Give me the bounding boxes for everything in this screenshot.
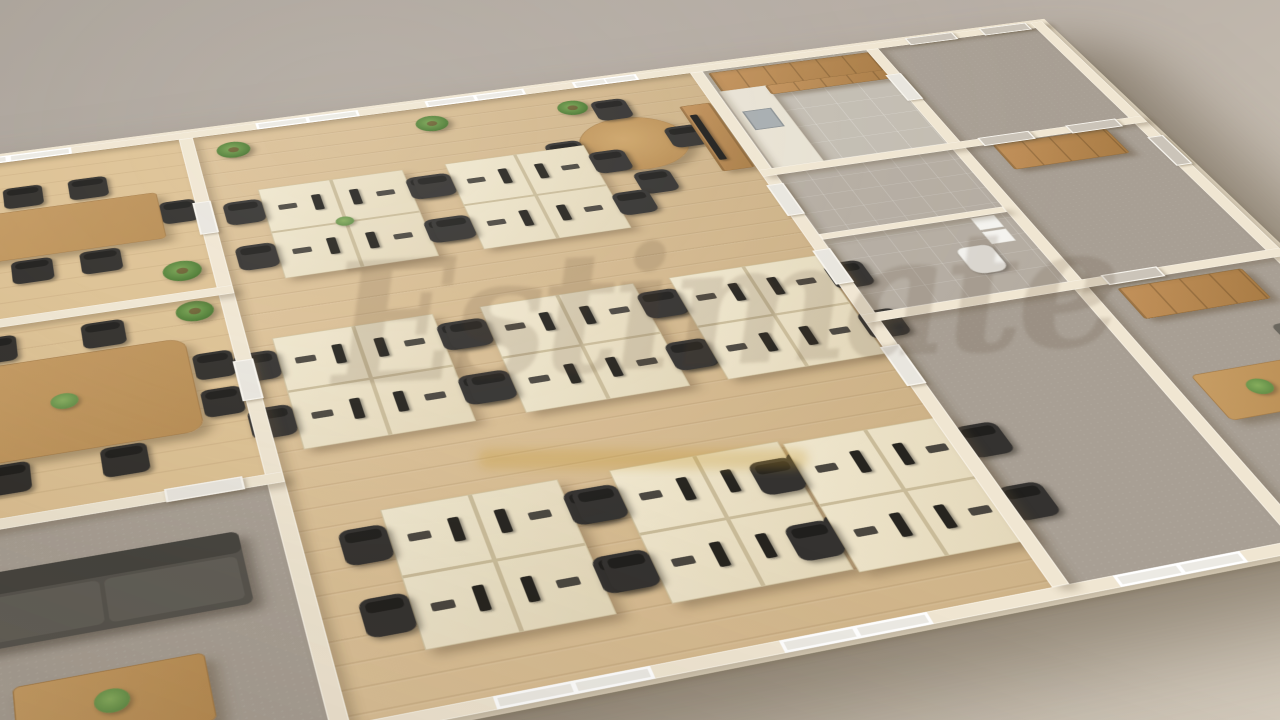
floor-plan-render: Estimate	[0, 0, 1280, 720]
building	[0, 28, 1280, 720]
